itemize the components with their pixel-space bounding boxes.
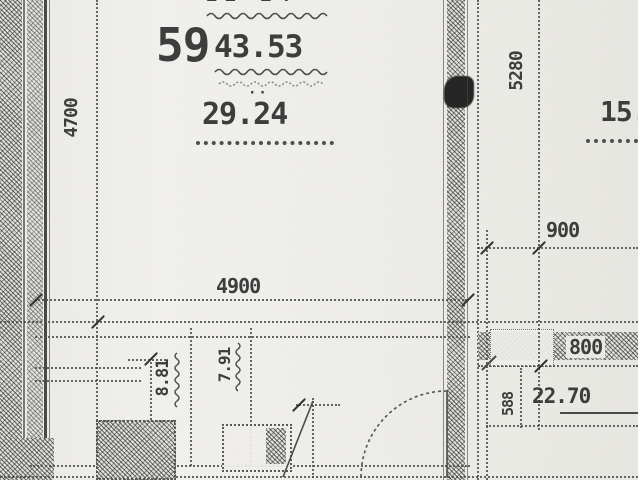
top-wavy-underline	[206, 10, 330, 20]
left-bottom-corner-hatch	[0, 438, 54, 480]
bath-left-area-text: 8.81	[155, 360, 172, 397]
right-room-area-underline	[560, 412, 638, 414]
right-top-room-dotted-underline	[586, 139, 638, 143]
center-wall-line-right	[467, 0, 468, 480]
clipped-top-digits: 21-24	[206, 0, 296, 4]
living-area-value: 29.24	[202, 100, 287, 130]
left-wall-line-inner	[23, 0, 25, 480]
right-top-room-area: 15.	[600, 98, 638, 126]
dim-588-text: 588	[501, 392, 516, 416]
right-bottom-room-area: 22.70	[532, 386, 590, 407]
floorplan-scan: 21-24 59 43.53 ·· 29.24 15. 22.70 4900 9…	[0, 0, 638, 480]
left-wall-hatch-outer	[0, 0, 22, 480]
dim-5280-text: 5280	[508, 51, 526, 90]
center-wall-dotted-face	[477, 0, 479, 480]
dim-800-text: 800	[566, 336, 605, 358]
fixture-hatched-unit	[96, 420, 176, 480]
left-wall-face-line	[44, 0, 47, 480]
dim-4700-rotated: 4700	[60, 68, 84, 168]
bath-right-wavy-underline	[233, 338, 241, 392]
dim-line-4900	[35, 299, 467, 301]
total-area-wavy-underline	[214, 66, 332, 76]
bath-wall-top-line	[35, 336, 470, 338]
bath-partition-vertical-b	[190, 328, 192, 466]
dim-line-800	[478, 365, 638, 367]
hall-small-line	[296, 404, 340, 406]
left-wall-face-line2	[49, 0, 50, 480]
dim-588-rotated: 588	[498, 376, 518, 432]
bath-left-wavy-underline	[172, 348, 180, 408]
dim-588-line	[520, 368, 522, 428]
left-wall-hatch-inner	[27, 0, 43, 480]
bath-right-area-text: 7.91	[217, 348, 233, 383]
dim-5280-rotated: 5280	[504, 22, 530, 120]
bath-partition-line-a	[35, 367, 141, 369]
center-wall-line-left	[443, 0, 444, 480]
dim-line-vertical-left	[96, 0, 98, 480]
dim-900-text: 900	[546, 220, 579, 240]
total-area-value: 43.53	[214, 32, 302, 63]
total-area-wavy-underline2	[218, 79, 330, 88]
dim-4900-text: 4900	[216, 276, 260, 296]
center-wall-junction-blob	[444, 76, 474, 108]
right-inner-face-line	[486, 230, 488, 480]
bath-left-label-rotated: 8.81	[148, 336, 186, 420]
dim-line-900	[478, 247, 638, 249]
fixture-sink-detail-hatch	[266, 428, 286, 464]
center-wall-hatch	[447, 0, 465, 480]
living-area-dotted-underline	[196, 141, 334, 145]
dim-4700-text: 4700	[63, 98, 81, 137]
apartment-number: 59	[156, 22, 209, 68]
bath-right-label-rotated: 7.91	[212, 330, 246, 400]
hall-partition-vertical	[312, 398, 314, 478]
bath-partition-line-b	[35, 380, 141, 382]
